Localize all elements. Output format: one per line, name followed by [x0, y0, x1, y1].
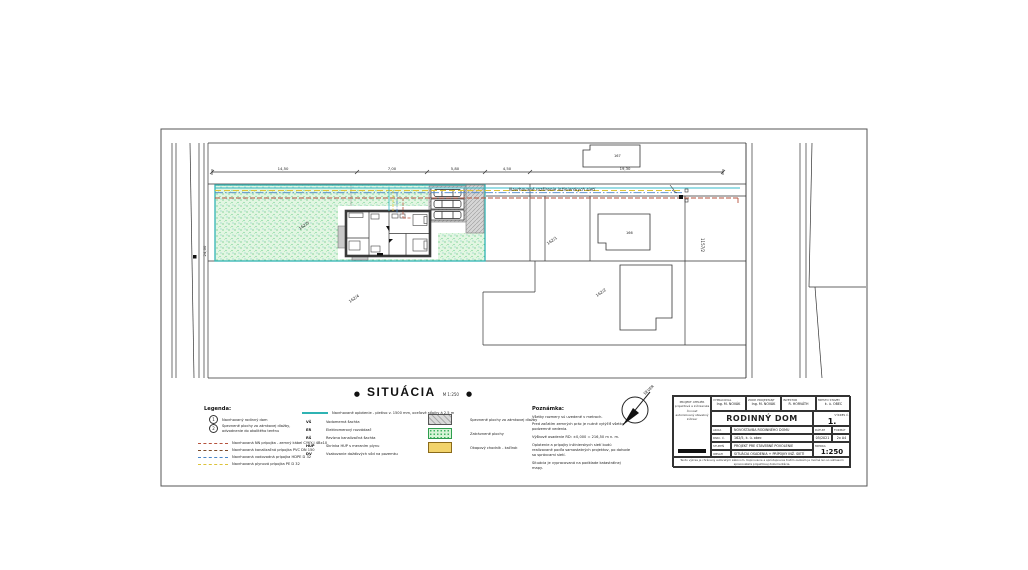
parcel-number-road: 1157/2 — [700, 238, 705, 253]
dim-top-3: 5,80 — [451, 166, 460, 171]
dim-top-2: 7,00 — [388, 166, 397, 171]
project-title: RODINNÝ DOM — [711, 411, 813, 426]
parcel-number-top-building: 167 — [614, 154, 621, 158]
dim-top-1: 14,50 — [278, 166, 289, 171]
tb-header-cell: VYPRACOVAL Ing. M. NOVÁK — [711, 396, 746, 411]
rainwater-icon: DV — [306, 452, 322, 456]
sewer-shaft-icon: RŠ — [306, 436, 322, 440]
drawing-scale: 1:250 — [814, 448, 850, 457]
title-bullet-right: ● — [466, 390, 472, 398]
logo-bar — [678, 449, 706, 453]
circled-2-icon: 2 — [209, 424, 218, 433]
house-plan — [338, 211, 430, 260]
note-line: Oplotenie a prípojky inžinierskych sietí… — [532, 443, 632, 459]
legend-swatch-grass: Zatrávnené plochy — [428, 428, 504, 439]
drawing-number-cell: VÝKRES Č. 1. — [813, 411, 851, 426]
note-line: Pred začatím zemných prác je nutné vytýč… — [532, 422, 632, 432]
site-plan-canvas: 14,50 7,00 5,80 4,50 19,30 24,00 Navrhov… — [0, 0, 1028, 570]
electric-line-sample — [198, 443, 228, 444]
gas-box-icon: HUP — [306, 444, 322, 448]
legend-symbol-er: ER Elektromerový rozvádzač — [306, 428, 371, 432]
gravel-swatch — [428, 442, 452, 453]
tb-header-cell: INVESTOR R. HORVÁTH — [781, 396, 816, 411]
page-title: SITUÁCIA — [367, 385, 436, 399]
legend-swatch-paving: Spevnené plochy zo zámkovej dlažby — [428, 414, 537, 425]
legend-header: Legenda: — [204, 406, 231, 412]
dim-top-4: 4,50 — [503, 166, 512, 171]
circled-1-icon: 1 — [209, 415, 218, 424]
legend-swatch-gravel: Okapový chodník - kačírok — [428, 442, 517, 453]
parcel-number-building: 166 — [626, 231, 633, 235]
legend-symbol-hup: HUP Skrinka HUP s meraním plynu — [306, 444, 379, 448]
legend-item-house: 1 Navrhovaný rodinný dom — [209, 415, 267, 424]
dim-left: 24,00 — [202, 245, 207, 256]
water-meter-shaft-icon: VŠ — [306, 420, 322, 424]
street-utilities-label: Navrhované rozšírenie inžinierskych siet… — [509, 187, 596, 192]
neighbor-building-top — [583, 145, 640, 167]
title-bullet-left: ● — [354, 390, 360, 398]
water-line-sample — [198, 457, 228, 458]
title-block: PROJEKT ATELIÉR projektová a inžinierska… — [672, 395, 850, 467]
legend-item-paving: 2 Spevnené plochy zo zámkovej dlažby, od… — [209, 424, 294, 433]
tb-header-cell: MIESTO STAVBY k. ú. OBEC — [816, 396, 851, 411]
legend-symbol-vs: VŠ Vodomerná šachta — [306, 420, 360, 424]
paving-swatch — [428, 414, 452, 425]
sewer-line-sample — [198, 450, 228, 451]
legend-symbol-rs: RŠ Revízna kanalizačná šachta — [306, 436, 376, 440]
page-title-scale: M 1:250 — [443, 392, 459, 397]
grass-swatch — [428, 428, 452, 439]
tb-header-cell: ZODP. PROJEKTANT Ing. M. NOVÁK — [746, 396, 781, 411]
car-icon — [434, 212, 461, 219]
note-line: Situácia je vypracovaná na podklade kata… — [532, 461, 632, 471]
plan-title: ● SITUÁCIA M 1:250 ● — [338, 385, 488, 399]
firm-logo-cell: PROJEKT ATELIÉR projektová a inžinierska… — [673, 396, 711, 457]
disclaimer-cell: Tento výkres je chránený autorským zákon… — [673, 457, 851, 468]
car-icon — [434, 201, 461, 208]
scale-cell: MIERKA 1:250 — [813, 442, 851, 457]
car-icons — [434, 190, 461, 219]
screenshot-root: 14,50 7,00 5,80 4,50 19,30 24,00 Navrhov… — [0, 0, 1028, 570]
note-line: Všetky rozmery sú uvedené v metroch. — [532, 415, 632, 420]
neighbor-building-mid — [598, 214, 650, 250]
notes-block: Poznámka: Všetky rozmery sú uvedené v me… — [532, 406, 632, 471]
gas-line-sample — [198, 464, 228, 465]
legend-symbol-dv: DV Vsakovanie dažďových vôd na pozemku — [306, 452, 398, 456]
legend-line-sewer: Navrhovaná kanalizačná prípojka PVC DN 1… — [198, 448, 315, 452]
fence-line-sample — [302, 412, 328, 414]
legend-line-water: Navrhovaná vodovodná prípojka HDPE D 32 — [198, 455, 311, 459]
legend-line-gas: Navrhovaná plynová prípojka PE D 32 — [198, 462, 300, 466]
notes-header: Poznámka: — [532, 406, 632, 412]
note-line: Výškové osadenie RD: ±0,000 = 216,50 m n… — [532, 435, 632, 440]
dim-top-5: 19,30 — [620, 166, 631, 171]
electric-meter-icon: ER — [306, 428, 322, 432]
